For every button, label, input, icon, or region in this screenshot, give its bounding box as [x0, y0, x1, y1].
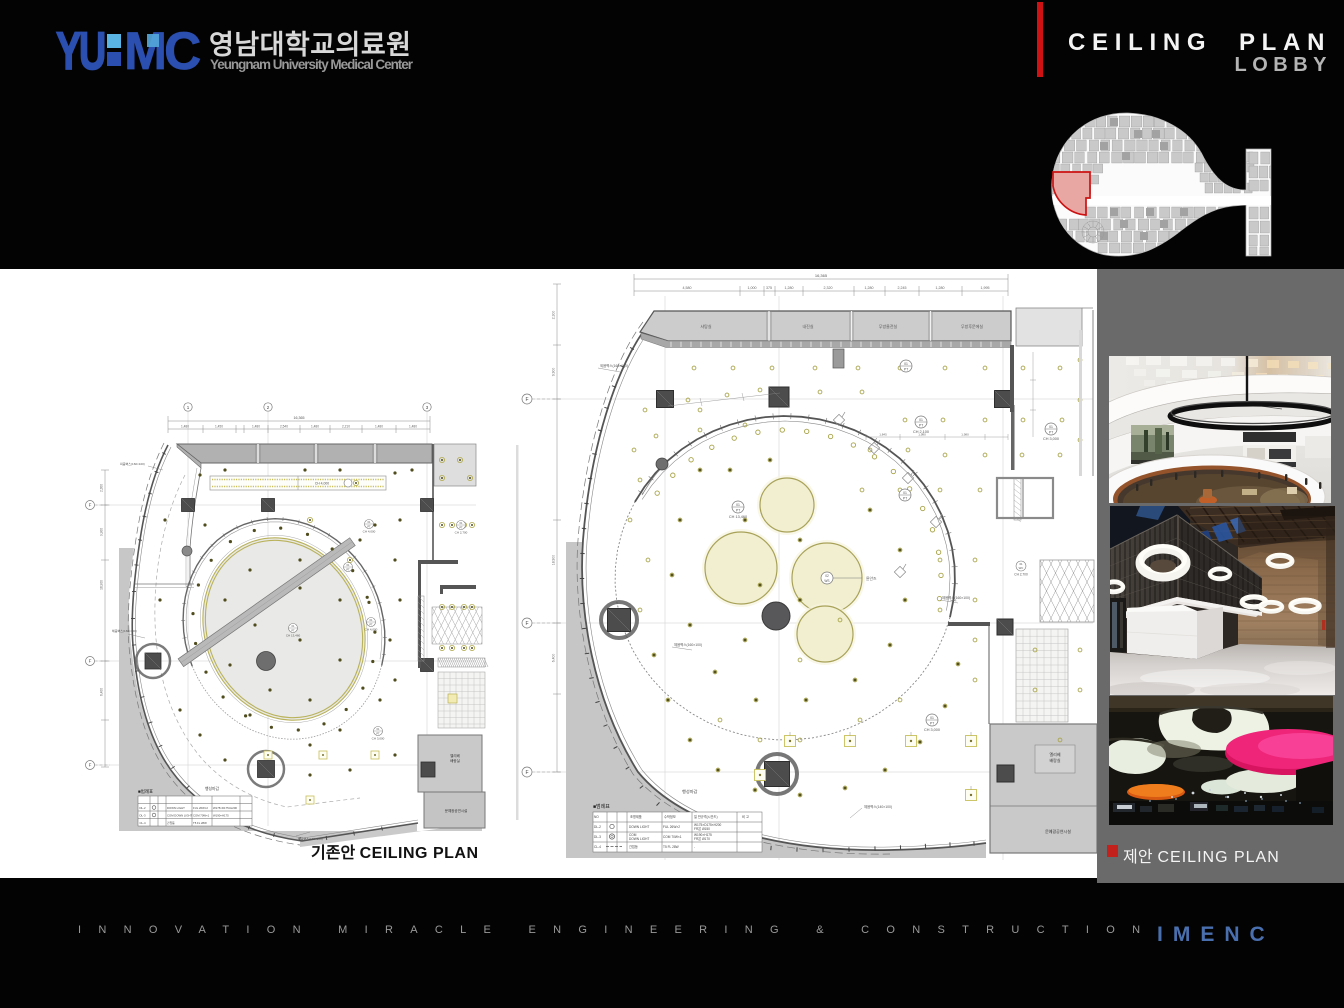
svg-text:2,300: 2,300	[552, 311, 556, 320]
svg-text:체음벽스(160×100): 체음벽스(160×100)	[942, 595, 970, 600]
svg-text:4,580: 4,580	[683, 286, 692, 290]
svg-text:W175×D175×H200: W175×D175×H200	[213, 806, 237, 810]
svg-text:01: 01	[903, 491, 907, 495]
svg-text:CL-4: CL-4	[594, 845, 601, 849]
svg-text:CH 4,000: CH 4,000	[315, 482, 329, 486]
svg-text:PT: PT	[376, 731, 380, 735]
svg-text:샤탕실: 샤탕실	[700, 323, 711, 329]
svg-text:F: F	[89, 503, 92, 508]
svg-text:01: 01	[904, 362, 908, 366]
svg-text:NO: NO	[594, 815, 599, 819]
svg-text:CH 4,000: CH 4,000	[363, 530, 376, 534]
svg-text:체음벽스(160×100): 체음벽스(160×100)	[674, 642, 702, 647]
svg-text:CH 3,000: CH 3,000	[372, 737, 385, 741]
svg-text:2,320: 2,320	[824, 286, 833, 290]
svg-text:9,900: 9,900	[552, 368, 556, 377]
svg-text:F: F	[89, 659, 92, 664]
svg-text:배랑실: 배랑실	[1049, 757, 1060, 763]
svg-text:WS: WS	[824, 579, 829, 583]
svg-text:CL-4: CL-4	[140, 821, 147, 825]
svg-text:6,400: 6,400	[552, 654, 556, 663]
svg-text:16,365: 16,365	[294, 416, 305, 420]
svg-text:비 고: 비 고	[742, 814, 749, 819]
svg-text:18,900: 18,900	[552, 555, 556, 565]
svg-text:MC: MC	[124, 22, 200, 81]
svg-text:F: F	[89, 763, 92, 768]
svg-text:1,480: 1,480	[181, 425, 189, 429]
svg-text:2,210: 2,210	[342, 425, 350, 429]
svg-text:일 반규격(시안드): 일 반규격(시안드)	[694, 814, 718, 819]
svg-text:DOWN LIGHT: DOWN LIGHT	[167, 806, 185, 810]
svg-text:DOWN LIGHT: DOWN LIGHT	[629, 837, 649, 841]
svg-text:Yeungnam University Medical Ce: Yeungnam University Medical Center	[210, 57, 414, 72]
svg-text:DL-3: DL-3	[594, 835, 601, 839]
svg-text:조명제품: 조명제품	[630, 814, 642, 819]
svg-text:행성마감: 행성마감	[205, 786, 219, 791]
svg-text:COM 70W×1: COM 70W×1	[663, 835, 682, 839]
svg-text:PT: PT	[369, 622, 373, 626]
svg-text:체음벽스(160×100): 체음벽스(160×100)	[112, 628, 137, 633]
svg-text:1,980: 1,980	[918, 433, 926, 437]
svg-text:1,480: 1,480	[375, 425, 383, 429]
svg-text:영남대학교의료원: 영남대학교의료원	[209, 30, 411, 60]
svg-text:■범례표: ■범례표	[593, 803, 610, 810]
svg-text:배랑실: 배랑실	[450, 758, 460, 763]
svg-text:륜안즈: 륜안즈	[866, 576, 877, 581]
svg-text:■범례표: ■범례표	[138, 788, 153, 795]
svg-text:FUL 26W×2: FUL 26W×2	[193, 806, 208, 810]
svg-text:1,000: 1,000	[748, 286, 757, 290]
svg-text:1,995: 1,995	[981, 286, 990, 290]
svg-text:01: 01	[919, 418, 923, 422]
svg-text:CH 2,700: CH 2,700	[455, 531, 468, 535]
svg-text:PT: PT	[346, 567, 350, 571]
svg-text:1,280: 1,280	[865, 286, 874, 290]
svg-text:COM 70W×1: COM 70W×1	[193, 814, 210, 818]
svg-text:02: 02	[825, 574, 829, 578]
svg-text:1,480: 1,480	[252, 425, 260, 429]
svg-text:F: F	[525, 397, 528, 403]
svg-text:1,980: 1,980	[961, 433, 969, 437]
svg-text:2,300: 2,300	[100, 484, 104, 492]
svg-text:DL-2: DL-2	[594, 825, 601, 829]
svg-text:FR은 Ø150: FR은 Ø150	[694, 827, 710, 831]
svg-text:2,245: 2,245	[898, 286, 907, 290]
svg-text:CH 13,460: CH 13,460	[286, 634, 301, 638]
svg-text:1,480: 1,480	[409, 425, 417, 429]
svg-text:CH 13,460: CH 13,460	[729, 515, 747, 519]
svg-text:PT: PT	[367, 524, 371, 528]
svg-text:F: F	[525, 621, 528, 627]
svg-text:외음벽스(160×100): 외음벽스(160×100)	[600, 363, 628, 368]
svg-text:01: 01	[1049, 425, 1053, 429]
svg-text:-: -	[694, 845, 695, 849]
svg-text:간접등: 간접등	[629, 844, 638, 849]
svg-text:COM DOWN LIGHT: COM DOWN LIGHT	[167, 814, 192, 818]
svg-text:DL-3: DL-3	[140, 814, 147, 818]
svg-text:문예광공연시설: 문예광공연시설	[445, 808, 468, 813]
svg-text:엘리베: 엘리베	[450, 753, 460, 758]
svg-text:01: 01	[736, 503, 740, 507]
svg-text:CH 2,700: CH 2,700	[1014, 573, 1028, 577]
svg-text:외음벽스(160×100): 외음벽스(160×100)	[120, 461, 145, 466]
svg-text:간접등: 간접등	[167, 821, 175, 825]
svg-text:18,900: 18,900	[100, 580, 104, 590]
svg-text:9,900: 9,900	[100, 528, 104, 536]
svg-text:PT: PT	[1049, 430, 1053, 434]
svg-text:무방후문에실: 무방후문에실	[961, 323, 983, 329]
svg-text:YU: YU	[56, 21, 104, 81]
svg-text:FR은 Ø170: FR은 Ø170	[694, 837, 710, 841]
svg-text:T5 FL 28W: T5 FL 28W	[663, 845, 679, 849]
svg-text:문예광공연시설: 문예광공연시설	[1045, 828, 1071, 834]
svg-text:W190×H175: W190×H175	[213, 814, 229, 818]
svg-text:T5 FL 28W: T5 FL 28W	[193, 821, 207, 825]
svg-text:PT: PT	[919, 423, 923, 427]
svg-text:내진실: 내진실	[802, 323, 813, 329]
svg-text:무방울전실: 무방울전실	[879, 323, 898, 329]
svg-text:DL-2: DL-2	[140, 806, 147, 810]
svg-text:엘리베: 엘리베	[1049, 751, 1060, 757]
svg-text:PT: PT	[930, 721, 934, 725]
svg-text:WC: WC	[1019, 566, 1024, 570]
svg-text:CH 4,000: CH 4,000	[365, 628, 378, 632]
svg-text:375: 375	[766, 286, 772, 290]
svg-text:행성마감: 행성마감	[682, 788, 698, 795]
svg-text:2,540: 2,540	[280, 425, 288, 429]
svg-text:체음벽스(140×100): 체음벽스(140×100)	[864, 804, 892, 809]
svg-text:1,480: 1,480	[311, 425, 319, 429]
svg-text:1,280: 1,280	[936, 286, 945, 290]
svg-text:수박정보: 수박정보	[664, 814, 676, 819]
svg-text:FUL 26W×2: FUL 26W×2	[663, 825, 680, 829]
svg-text:01: 01	[930, 716, 934, 720]
svg-text:PT: PT	[736, 508, 740, 512]
svg-text:CH 3,000: CH 3,000	[1043, 437, 1059, 441]
svg-text:PT: PT	[903, 496, 907, 500]
svg-text:1,450: 1,450	[215, 425, 223, 429]
svg-text:PT: PT	[904, 367, 908, 371]
svg-text:CH 3,000: CH 3,000	[924, 728, 940, 732]
svg-text:PT: PT	[291, 628, 295, 632]
svg-text:1,280: 1,280	[785, 286, 794, 290]
svg-text:F: F	[525, 770, 528, 776]
svg-text:16,365: 16,365	[815, 273, 828, 278]
svg-text:PT: PT	[459, 525, 463, 529]
svg-text:6,400: 6,400	[100, 688, 104, 696]
svg-text:DOWN LIGHT: DOWN LIGHT	[629, 825, 649, 829]
svg-text:1,845: 1,845	[879, 433, 887, 437]
